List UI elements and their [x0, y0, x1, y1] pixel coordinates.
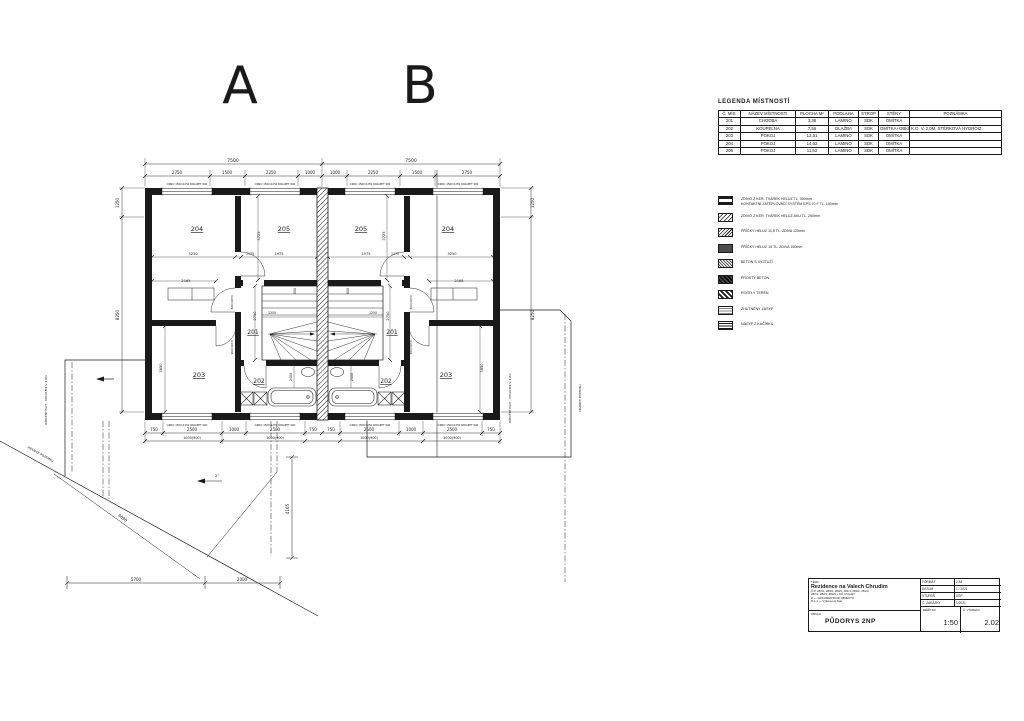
plan-label: 2750: [172, 170, 183, 175]
legend-line: KONTAKTNÍ ZATEPLOVACÍ SYSTÉM EPS 70 F TL…: [741, 202, 838, 207]
plan-label: 6890: [117, 513, 129, 523]
cell: CHODBA: [741, 118, 796, 125]
room-legend-header-row: Č. MÍS. NÁZEV MÍSTNOSTI PLOCHA M² PODLAH…: [719, 111, 1002, 118]
plan-label: 1250: [115, 197, 120, 208]
material-legend: ZDIVO Z KER. TVÁREK HELUZ TL. 300mm KONT…: [718, 196, 838, 337]
plan-label: DŘEVĚNÝ PLOT - OPLOCENÍ V. 1,8m: [43, 375, 48, 425]
legend-item-label: NÁSYP Z KAČÍRKU: [741, 321, 773, 327]
cell: 13,51: [796, 133, 829, 140]
plan-label: DŘEVĚNÝ PLOT - OPLOCENÍ V. 1,8m: [507, 373, 512, 423]
partition-150-swatch-icon: [718, 244, 733, 253]
cell: SDK: [859, 118, 879, 125]
plain-concrete-swatch-icon: [718, 275, 733, 284]
plan-label: 4165: [285, 503, 290, 514]
plan-label: 2400: [350, 373, 354, 381]
cell: SDK: [859, 133, 879, 140]
property-boundary-line: [0, 441, 318, 616]
cell: 204: [719, 140, 741, 147]
cell: SDK: [859, 140, 879, 147]
cell: OMÍTKA: [879, 140, 910, 147]
cell: SDK: [859, 125, 879, 132]
drawing-title: PŮDORYS 2NP: [825, 618, 918, 625]
gravel-swatch-icon: [718, 321, 733, 330]
col-header: PODLAHA: [829, 111, 859, 118]
col-header: NÁZEV MÍSTNOSTI: [741, 111, 796, 118]
plan-label: 2750: [253, 311, 257, 321]
scale-label: MĚŘÍTKO: [923, 608, 936, 612]
plan-label: 800: [346, 288, 350, 294]
plan-label: 1000: [406, 427, 417, 432]
cell: 7,56: [796, 125, 829, 132]
plan-label: 2400: [289, 373, 293, 381]
order-label: Č. ZAKÁZKY: [921, 600, 955, 607]
plan-label: OKNO 1500/1250 PARAPET 900: [350, 182, 391, 186]
format-value: 2 A4: [955, 579, 1001, 586]
left-terrace-outline: [65, 360, 148, 476]
bathtub: [268, 388, 316, 406]
legend-item-label: PŘÍČKY HELUZ 14 TL. ZDIVA 150mm: [741, 244, 802, 250]
order-row: Č. ZAKÁZKY 1/2021: [921, 600, 1001, 607]
date-value: 1 / 2021: [955, 586, 1001, 593]
plan-label: 5700: [131, 577, 142, 582]
date-label: DATUM: [921, 586, 955, 593]
room-label-204-a: 204: [191, 225, 203, 233]
slope-arrow-icon: [197, 479, 205, 484]
plan-label: 2500: [270, 427, 281, 432]
table-row: 202KOUPELNA7,56DLAŽBASDKOMÍTKA+OBKLADK.O…: [719, 125, 1002, 132]
native-soil-swatch-icon: [718, 290, 733, 299]
plan-label: OKNO 1500/1250 PARAPET 900: [167, 182, 208, 186]
col-header: POZNÁMKA: [910, 111, 1002, 118]
plan-label: 7500: [227, 158, 239, 164]
washbasin: [302, 368, 315, 377]
plan-label: 1500: [412, 170, 423, 175]
drawing-number-cell: Č. VÝKRESU 2.02: [961, 607, 1001, 633]
plan-label: 2250: [368, 170, 379, 175]
legend-item: NÁSYP Z KAČÍRKU: [718, 321, 838, 330]
plan-label: 1000(900): [266, 436, 284, 440]
plan-label: 1500: [222, 170, 233, 175]
plan-label: 2165: [181, 279, 190, 283]
site-lines: [0, 310, 571, 616]
cell: SDK: [859, 148, 879, 155]
reinforced-concrete-swatch-icon: [718, 259, 733, 268]
legend-item-label: ZHUTNĚNÝ ZÁSYP: [741, 306, 773, 312]
scale-cell: MĚŘÍTKO 1:50: [921, 607, 961, 633]
room-label-204-b: 204: [442, 225, 454, 233]
room-label-202-a: 202: [253, 378, 265, 385]
plan-label: 750: [487, 427, 495, 432]
compacted-fill-swatch-icon: [718, 306, 733, 315]
plan-label: 1975: [274, 252, 283, 256]
cell: OMÍTKA+OBKLAD: [879, 125, 910, 132]
plan-label: 800(1970): [409, 295, 413, 310]
cell: KOUPELNA: [741, 125, 796, 132]
cell: 201: [719, 118, 741, 125]
cell: DLAŽBA: [829, 125, 859, 132]
staircase: [262, 286, 318, 360]
plan-label: 1250: [530, 197, 535, 208]
plan-label: 750: [309, 427, 317, 432]
format-row: FORMÁT 2 A4: [921, 579, 1001, 586]
plan-label: OKNO 1500/1250 PARAPET 900: [438, 423, 479, 427]
cell: POKOJ: [741, 148, 796, 155]
plan-label: OKNO 1500/1250 PARAPET 900: [438, 182, 479, 186]
plan-label: OKNO 1500/1250 PARAPET 900: [255, 423, 296, 427]
plan-label: 8250: [115, 309, 120, 320]
room-label-203-a: 203: [193, 371, 205, 379]
legend-item-label: ZDIVO Z KER. TVÁREK HELUZ TL. 300mm KONT…: [741, 196, 838, 206]
stage-label: STUPEŇ: [921, 593, 955, 600]
col-header: STĚNY: [879, 111, 910, 118]
col-header: PLOCHA M²: [796, 111, 829, 118]
order-value: 1/2021: [955, 600, 1001, 607]
plan-label: 3850: [480, 363, 484, 373]
room-legend-title: LEGENDA MÍSTNOSTÍ: [718, 99, 790, 105]
fence-dim-line: [57, 476, 196, 576]
cell: OMÍTKA: [879, 148, 910, 155]
cell: OMÍTKA: [879, 133, 910, 140]
legend-item: PROSTÝ BETON: [718, 275, 838, 284]
plan-label: 3250: [447, 252, 457, 256]
plan-label: 900(1970): [409, 340, 413, 355]
drawing-sheet: { "letters": { "unit_a": "A", "unit_b": …: [0, 0, 1024, 721]
cell: OMÍTKA: [879, 118, 910, 125]
plan-label: 2500: [187, 427, 198, 432]
legend-item-label: BETON S VÝZTUŽÍ: [741, 259, 773, 265]
plan-label: 2500: [364, 427, 375, 432]
col-header: Č. MÍS.: [719, 111, 741, 118]
partition-125-swatch-icon: [718, 228, 733, 237]
plan-label: 1000(900): [183, 436, 201, 440]
date-row: DATUM 1 / 2021: [921, 586, 1001, 593]
plan-label: OKNO 1500/1250 PARAPET 900: [350, 423, 391, 427]
cell: [910, 118, 1002, 125]
plan-label: 1000(900): [443, 436, 461, 440]
table-row: 201CHODBA3,38LAMINOSDKOMÍTKA: [719, 118, 1002, 125]
legend-item: ZHUTNĚNÝ ZÁSYP: [718, 306, 838, 315]
plan-label: OKNO 1500/1250 PARAPET 900: [167, 423, 208, 427]
plan-label: 3250: [188, 252, 198, 256]
plan-label: 2500: [447, 427, 458, 432]
doc-stage-line: D.1.1 — Výkresová část: [811, 600, 918, 603]
plan-label: OKNO 1500/1250 PARAPET 900: [255, 182, 296, 186]
legend-item-label: ZDIVO Z KER. TVÁREK HELUZ AKU TL. 250mm: [741, 213, 820, 219]
plan-label: 800(1970): [230, 295, 234, 310]
plan-label: 2°: [215, 474, 219, 478]
title-block: TÉMA Rezidence na Valech Chrudim Č.P. 28…: [808, 578, 1000, 632]
masonry-aku-swatch-icon: [718, 213, 733, 222]
legend-item-label: PŘÍČKY HELUZ 11,5 TL. ZDIVA 125mm: [741, 228, 805, 234]
cell: [910, 133, 1002, 140]
cell: 202: [719, 125, 741, 132]
plan-label: 750: [150, 427, 158, 432]
room-label-201-a: 201: [247, 329, 259, 336]
drawing-number-label: Č. VÝKRESU: [963, 608, 980, 612]
col-header: STROP: [859, 111, 879, 118]
plan-label: 2250: [266, 170, 277, 175]
plan-label: HRANICE POZEMKU: [27, 445, 54, 463]
plan-label: 1175: [246, 252, 254, 256]
title-block-project-cell: TÉMA Rezidence na Valech Chrudim Č.P. 28…: [809, 579, 921, 611]
drawing-number-value: 2.02: [963, 618, 999, 627]
cell: [910, 140, 1002, 147]
cell: [910, 148, 1002, 155]
cell: POKOJ: [741, 140, 796, 147]
table-row: 203POKOJ13,51LAMINOSDKOMÍTKA: [719, 133, 1002, 140]
plan-label: 1250: [268, 311, 276, 315]
plan-label: 3725: [382, 231, 386, 240]
room-legend-table: Č. MÍS. NÁZEV MÍSTNOSTI PLOCHA M² PODLAH…: [718, 110, 1002, 155]
legend-item: ZDIVO Z KER. TVÁREK HELUZ TL. 300mm KONT…: [718, 196, 838, 206]
plan-label: 3725: [257, 231, 261, 240]
legend-item: PŘÍČKY HELUZ 11,5 TL. ZDIVA 125mm: [718, 228, 838, 237]
masonry-insulation-swatch-icon: [718, 196, 733, 205]
legend-item: BETON S VÝZTUŽÍ: [718, 259, 838, 268]
plan-label: 7500: [405, 158, 417, 164]
room-label-205-a: 205: [278, 225, 290, 233]
plan-label: HRANICE POZEMKU: [578, 384, 582, 411]
legend-item: ROSTLÝ TERÉN: [718, 290, 838, 299]
room-label-205-b: 205: [355, 225, 367, 233]
legend-item: ZDIVO Z KER. TVÁREK HELUZ AKU TL. 250mm: [718, 213, 838, 222]
plan-label: 2750: [462, 170, 473, 175]
stage-row: STUPEŇ DSP: [921, 593, 1001, 600]
plan-label: 900(1970): [230, 340, 234, 355]
scale-value: 1:50: [923, 618, 958, 627]
plan-label: A: [222, 56, 258, 116]
cell: 203: [719, 133, 741, 140]
cell: LAMINO: [829, 133, 859, 140]
plan-label: 1250: [369, 311, 377, 315]
plan-label: 1175: [391, 252, 399, 256]
plan-label: 1000: [229, 427, 240, 432]
room-label-203-b: 203: [440, 371, 452, 379]
plan-label: 1000: [330, 170, 341, 175]
plan-label: 1975: [361, 252, 370, 256]
plan-label: 8250: [530, 309, 535, 320]
stage-value: DSP: [955, 593, 1001, 600]
plan-label: 2165: [454, 279, 463, 283]
plan-label: 800: [293, 288, 297, 294]
table-row: 205POKOJ11,52LAMINOSDKOMÍTKA: [719, 148, 1002, 155]
cell: K.O. V. 2,0M, STĚRKOVÁ HYDROIZ.: [910, 125, 1002, 132]
plan-label: 1000: [305, 170, 316, 175]
obsah-label: OBSAH: [811, 612, 821, 616]
entrance-arrow-icon: [96, 377, 104, 382]
plan-label: B: [402, 56, 438, 116]
plan-label: 750: [327, 427, 335, 432]
floorplan-drawing: AB75007500275015002250100010002250150027…: [0, 0, 710, 721]
legend-item: PŘÍČKY HELUZ 14 TL. ZDIVA 150mm: [718, 244, 838, 253]
title-block-content-cell: OBSAH PŮDORYS 2NP: [809, 611, 921, 631]
cell: LAMINO: [829, 118, 859, 125]
room-label-201-b: 201: [386, 329, 398, 336]
room-label-202-b: 202: [380, 378, 392, 385]
legend-item-label: ROSTLÝ TERÉN: [741, 290, 769, 296]
table-row: 204POKOJ14,62LAMINOSDKOMÍTKA: [719, 140, 1002, 147]
cell: 3,38: [796, 118, 829, 125]
plan-label: 3850: [159, 363, 163, 373]
plan-label: 2750: [386, 311, 390, 321]
party-wall: [317, 188, 328, 420]
cell: 11,52: [796, 148, 829, 155]
plan-label: 1000(900): [360, 436, 378, 440]
wardrobe: [168, 288, 214, 300]
cell: LAMINO: [829, 148, 859, 155]
washing-machine: [240, 392, 267, 405]
plan-label: 2000: [237, 577, 248, 582]
cell: 14,62: [796, 140, 829, 147]
cell: POKOJ: [741, 133, 796, 140]
cell: LAMINO: [829, 140, 859, 147]
cell: 205: [719, 148, 741, 155]
legend-item-label: PROSTÝ BETON: [741, 275, 769, 281]
format-label: FORMÁT: [921, 579, 955, 586]
